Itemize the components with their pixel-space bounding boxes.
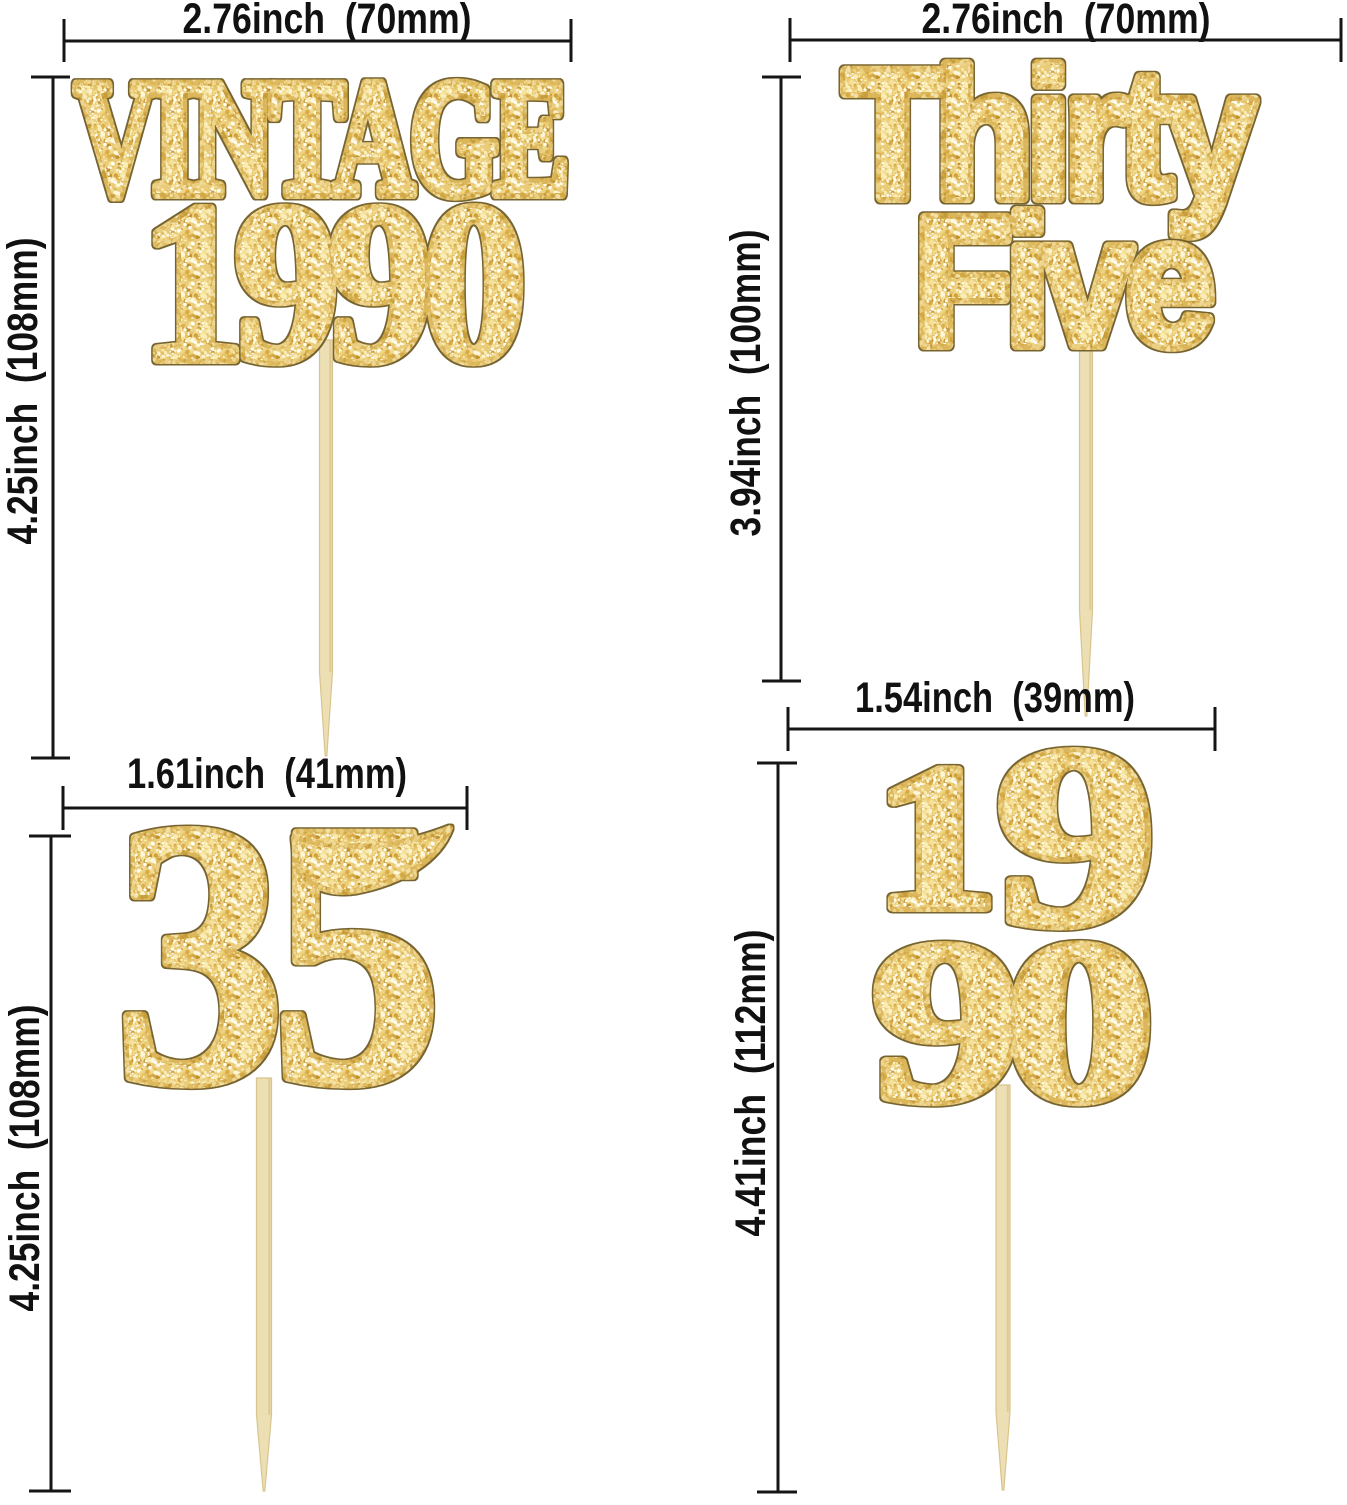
svg-text:4.41inch (112mm): 4.41inch (112mm) [727, 930, 775, 1237]
svg-text:90: 90 [872, 893, 1144, 1149]
svg-text:1990: 1990 [141, 158, 519, 409]
svg-text:4.25inch (108mm): 4.25inch (108mm) [1, 1005, 49, 1312]
svg-text:2.76inch (70mm): 2.76inch (70mm) [183, 0, 472, 43]
svg-text:Five: Five [914, 179, 1210, 383]
svg-text:4.25inch (108mm): 4.25inch (108mm) [0, 238, 47, 545]
svg-text:35: 35 [115, 746, 431, 1162]
svg-text:3.94inch (100mm): 3.94inch (100mm) [722, 230, 770, 537]
